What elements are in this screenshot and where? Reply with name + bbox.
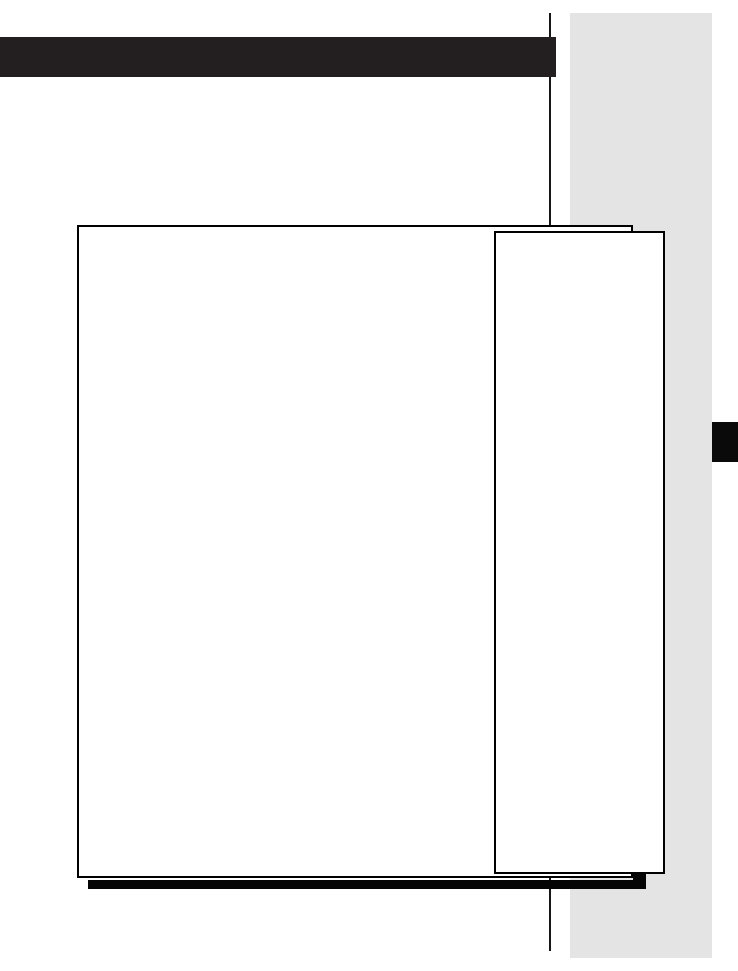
header-bar <box>0 37 556 77</box>
side-overlay-frame <box>494 231 665 874</box>
frame-shadow-bar <box>88 880 646 889</box>
scanned-page <box>0 0 738 971</box>
frame-shadow-notch <box>633 872 646 889</box>
edge-tab <box>712 422 738 462</box>
